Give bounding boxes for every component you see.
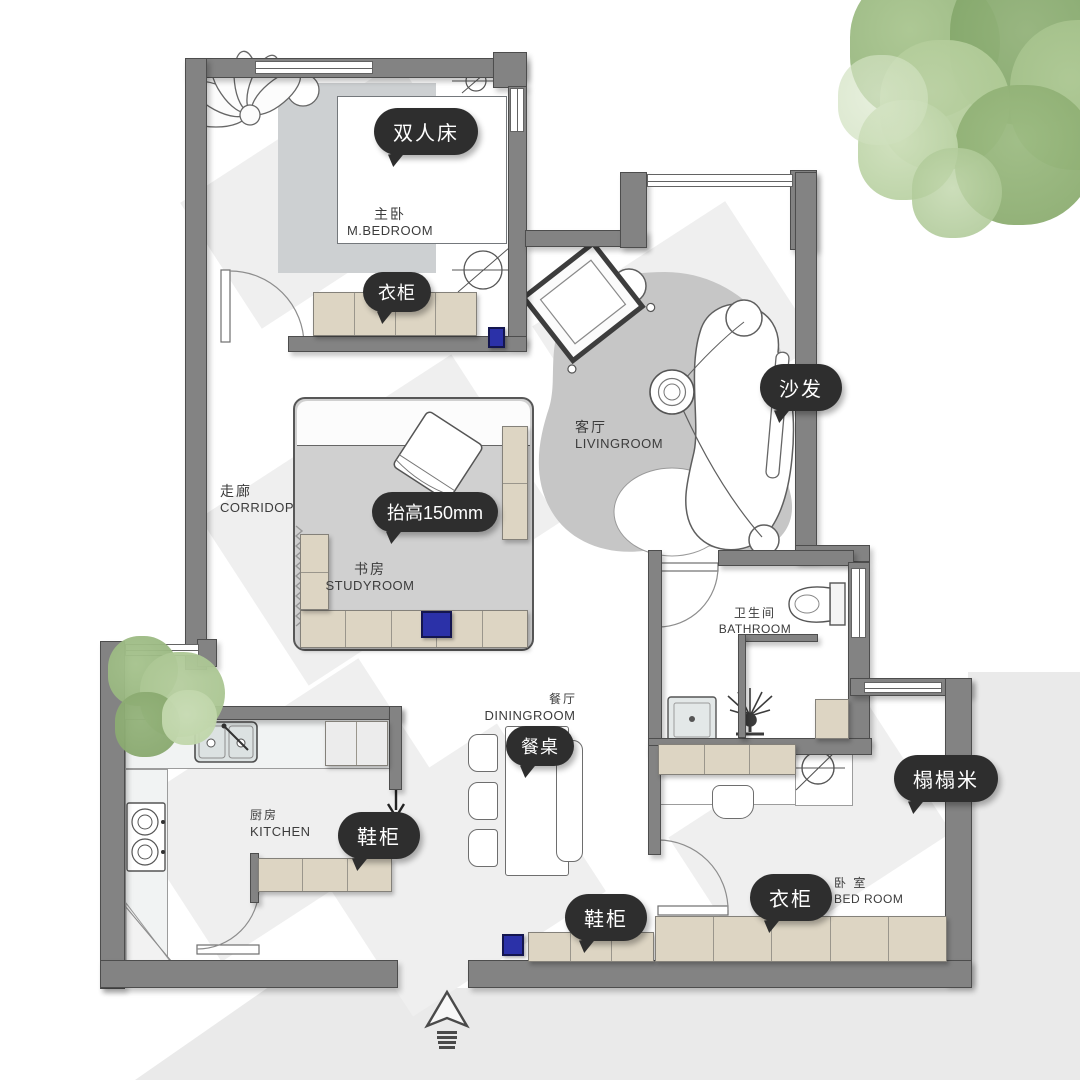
room-name-en: BED ROOM [834,892,924,908]
callout-shoe-cabinet-entry: 鞋柜 [565,894,647,941]
study-side-cabinet [502,426,528,540]
wall-pier [493,52,527,88]
shower-head [728,688,772,734]
wall-segment [468,960,972,988]
floor-plan-canvas: 主卧 M.BEDROOM 客厅 LIVINGROOM 走廊 CORRIDOP 书… [0,0,1080,1080]
room-name-en: DININGROOM [465,708,595,725]
ground-shade-right [968,672,1080,990]
room-name-cn: 卫生间 [705,606,805,622]
wall-segment [738,634,746,738]
room-label-kitchen: 厨房 KITCHEN [250,808,330,840]
room-name-cn: 卧 室 [834,876,924,892]
room-name-cn: 主卧 [330,205,450,223]
room-label-bathroom: 卫生间 BATHROOM [705,606,805,637]
rug-white-circle [614,468,730,556]
shoe-cabinet [258,858,392,892]
wall-segment [185,58,207,670]
room-label-study: 书房 STUDYROOM [315,560,425,595]
desk-chair [712,785,754,819]
room-name-en: CORRIDOP [220,500,310,517]
window [864,682,942,693]
room-label-living-room: 客厅 LIVINGROOM [575,418,695,453]
room-name-cn: 客厅 [575,418,695,436]
wall-segment [207,706,402,720]
wall-segment [718,550,854,566]
callout-wardrobe-master: 衣柜 [363,272,431,312]
room-label-corridor: 走廊 CORRIDOP [220,482,310,517]
kitchen-cabinet [325,721,388,766]
circle-slash-symbol [452,248,514,292]
callout-raised-floor: 抬高150mm [372,492,498,532]
callout-tatami: 榻榻米 [894,755,998,802]
callout-double-bed: 双人床 [374,108,478,155]
wardrobe-cabinet [655,916,947,962]
room-name-en: KITCHEN [250,824,330,841]
window [851,568,866,638]
room-name-en: BATHROOM [705,622,805,638]
study-cabinet [300,610,528,648]
room-label-master-bedroom: 主卧 M.BEDROOM [330,205,450,240]
kitchen-counter-left [125,769,168,961]
window [510,88,524,132]
dining-chair [468,734,498,772]
wall-segment [100,960,398,988]
study-futon [297,401,530,446]
room-name-en: LIVINGROOM [575,436,695,453]
room-name-cn: 走廊 [220,482,310,500]
room-label-bedroom: 卧 室 BED ROOM [834,876,924,907]
room-name-cn: 书房 [315,560,425,578]
wall-segment [389,706,402,790]
bath-shelf [815,699,849,739]
room-name-en: STUDYROOM [315,578,425,595]
blue-accent-block [488,327,505,348]
dining-chair [468,829,498,867]
room-name-cn: 餐厅 [465,692,595,708]
wall-segment [620,172,647,248]
room-name-cn: 厨房 [250,808,330,824]
tree-canopy [912,148,1002,238]
callout-dining-table: 餐桌 [506,726,574,766]
callout-wardrobe-bedroom: 衣柜 [750,874,832,921]
blue-accent-block [502,934,524,956]
wall-segment [945,678,972,984]
ground-shade-bottom [135,988,1080,1080]
callout-shoe-cabinet-kitchen: 鞋柜 [338,812,420,859]
blue-accent-block [421,611,452,638]
dining-chair [468,782,498,820]
room-name-en: M.BEDROOM [330,223,450,240]
room-label-dining: 餐厅 DININGROOM [465,692,595,724]
window [255,61,373,74]
callout-sofa: 沙发 [760,364,842,411]
overhead-cabinet [658,744,796,775]
window [647,174,793,187]
wall-segment [648,550,662,753]
